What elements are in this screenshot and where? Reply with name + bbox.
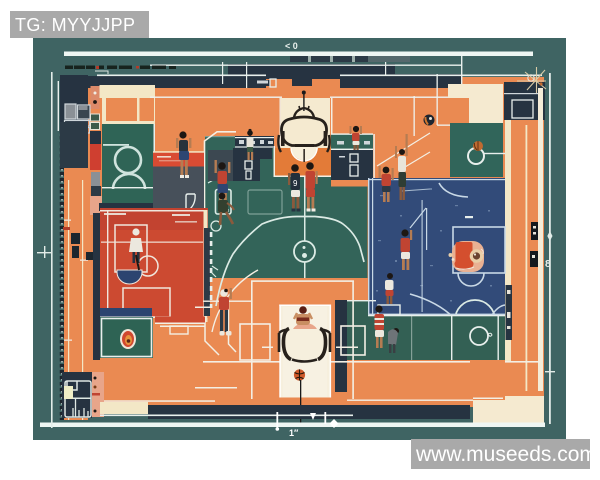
svg-text:www.museeds.com: www.museeds.com [415,443,597,466]
svg-text:8: 8 [545,258,551,270]
svg-text:< 0: < 0 [285,41,298,51]
svg-text:9: 9 [293,179,298,188]
svg-text:1′′: 1′′ [289,428,298,438]
svg-text:TG: MYYJJPP: TG: MYYJJPP [15,15,135,35]
